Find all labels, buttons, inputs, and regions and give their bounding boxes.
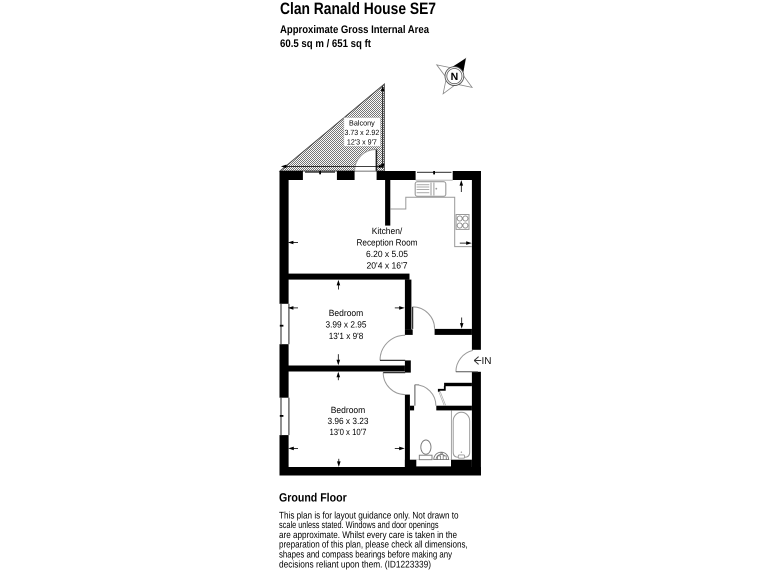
svg-text:3.96 x 3.23: 3.96 x 3.23 bbox=[328, 416, 369, 426]
svg-text:6.20 x 5.05: 6.20 x 5.05 bbox=[366, 249, 408, 259]
svg-text:3.73 x 2.92: 3.73 x 2.92 bbox=[345, 128, 380, 137]
svg-text:IN: IN bbox=[482, 356, 492, 367]
svg-text:Reception Room: Reception Room bbox=[357, 237, 418, 247]
svg-text:Ground Floor: Ground Floor bbox=[279, 491, 347, 505]
svg-text:Bedroom: Bedroom bbox=[329, 308, 364, 318]
svg-text:Kitchen/: Kitchen/ bbox=[372, 226, 403, 236]
svg-text:Clan Ranald House SE7: Clan Ranald House SE7 bbox=[280, 0, 436, 18]
svg-text:13'0 x 10'7: 13'0 x 10'7 bbox=[330, 427, 367, 437]
svg-text:3.99 x 2.95: 3.99 x 2.95 bbox=[326, 319, 367, 329]
svg-text:N: N bbox=[451, 71, 459, 83]
svg-text:20'4 x 16'7: 20'4 x 16'7 bbox=[367, 261, 408, 271]
svg-text:60.5 sq m / 651 sq ft: 60.5 sq m / 651 sq ft bbox=[280, 38, 371, 50]
svg-text:decisions reliant upon them. (: decisions reliant upon them. (ID1223339) bbox=[279, 559, 431, 570]
svg-text:Bedroom: Bedroom bbox=[331, 405, 366, 415]
svg-text:Balcony: Balcony bbox=[349, 118, 375, 127]
svg-text:12'3 x 9'7: 12'3 x 9'7 bbox=[347, 138, 377, 147]
svg-text:Approximate Gross Internal Are: Approximate Gross Internal Area bbox=[280, 24, 430, 36]
svg-text:13'1 x 9'8: 13'1 x 9'8 bbox=[329, 331, 364, 341]
